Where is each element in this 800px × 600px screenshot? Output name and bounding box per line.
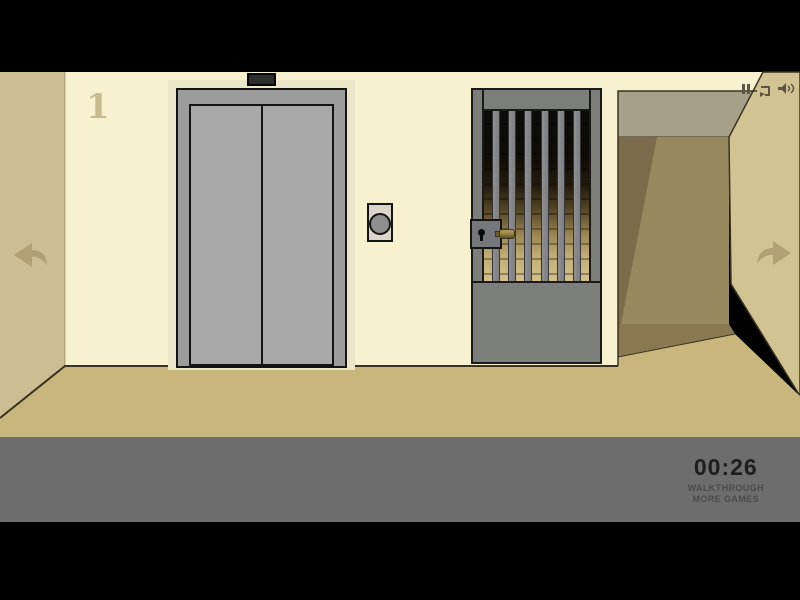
elevator-call-panel (367, 203, 393, 242)
hud-bar: 00:26 WALKTHROUGH MORE GAMES (0, 437, 800, 522)
elevator-doors[interactable] (189, 104, 334, 366)
elevator-call-button[interactable] (369, 213, 391, 235)
keyhole-icon[interactable] (478, 229, 485, 236)
replay-icon[interactable] (757, 83, 773, 99)
gate-knob[interactable] (499, 229, 515, 239)
walkthrough-link[interactable]: WALKTHROUGH (688, 483, 764, 494)
game-stage: 1 00:26 WALKTHROUGH MORE GAMES (0, 0, 800, 600)
gate-bar (492, 110, 500, 281)
left-wall (0, 72, 65, 418)
sound-icon[interactable] (776, 81, 798, 97)
gate-bar (508, 110, 516, 281)
hud-panel: 00:26 WALKTHROUGH MORE GAMES (688, 456, 764, 505)
gate-bottom-panel[interactable] (471, 281, 602, 364)
elevator-door-right[interactable] (263, 106, 333, 364)
gate-bar (524, 110, 532, 281)
elevator-door-left[interactable] (191, 106, 263, 364)
gate-bar (557, 110, 565, 281)
gate-bars[interactable] (484, 110, 589, 281)
pause-icon[interactable] (740, 83, 752, 95)
gate-bar (541, 110, 549, 281)
elevator-floor-indicator (247, 73, 276, 86)
timer: 00:26 (688, 456, 764, 479)
gate-header (471, 88, 602, 111)
floor-number-label: 1 (86, 90, 110, 124)
gate-bar (573, 110, 581, 281)
more-games-link[interactable]: MORE GAMES (688, 494, 764, 505)
